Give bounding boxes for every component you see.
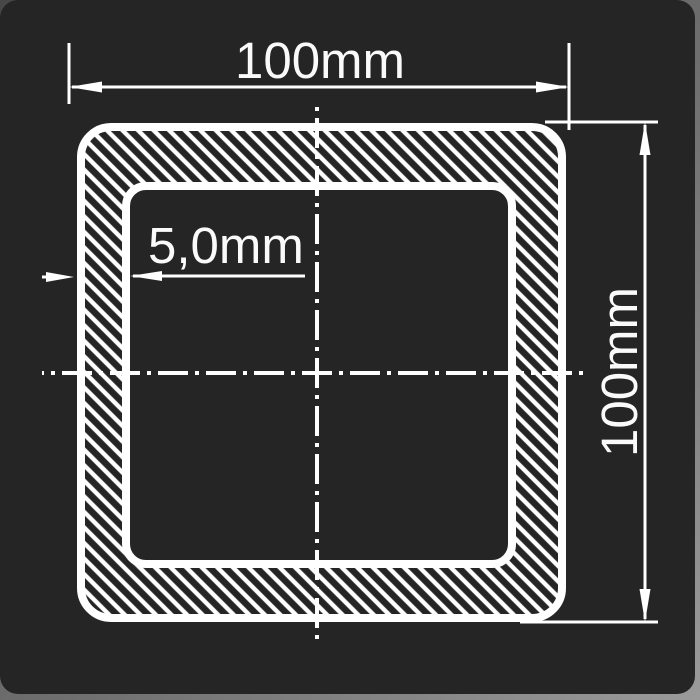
height-dimension-label: 100mm [591, 287, 648, 457]
thickness-dimension-label: 5,0mm [148, 217, 304, 274]
arrowhead-thickness-outer-icon [46, 272, 74, 282]
width-dimension-label: 100mm [235, 32, 405, 89]
cross-section-drawing: 100mm 100mm 5,0mm [0, 0, 700, 700]
arrowhead-left-icon [69, 82, 102, 93]
arrowhead-down-icon [640, 589, 651, 622]
width-dimension: 100mm [69, 32, 569, 130]
arrowhead-up-icon [640, 122, 651, 155]
screenshot-frame: 100mm 100mm 5,0mm [0, 0, 700, 700]
arrowhead-right-icon [536, 82, 569, 93]
